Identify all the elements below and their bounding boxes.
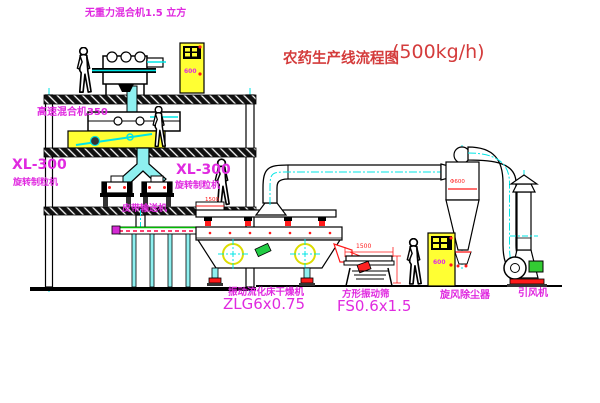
indicator-dot-icon [449,263,452,266]
slab-top [44,95,256,104]
indicator-dot-icon [198,45,201,48]
label-belt-conveyor: 皮带输送机 [122,205,167,214]
dim-dryer-feed: 1500 [205,198,219,204]
conveyor-drive [112,226,120,234]
worker-ground-floor [407,239,421,284]
dryer-supports [207,268,315,286]
column-left [46,95,53,287]
belt-conveyor [112,226,202,287]
indicator-dot-icon [198,72,201,75]
label-screen-model: FS0.6x1.5 [337,299,411,314]
diagram-title: 农药生产线流程图 [283,52,399,67]
label-granulator-name-right: 旋转制粒机 [175,182,220,191]
label-granulator-model-right: XL-300 [176,163,231,177]
label-high-speed-mixer: 高速混合机350 [37,108,108,118]
indicator-dot-icon [449,236,452,239]
slab-mid [44,148,256,157]
cabinet-mark-ground: 600 [433,260,446,266]
dim-cyclone-diameter: Φ600 [450,180,465,186]
granulator-right [140,176,174,207]
dim-screen-length: 1500 [356,244,371,250]
diagram-title-capacity: (500kg/h) [392,43,485,62]
ground-building [30,287,256,291]
worker-top-floor [77,47,91,92]
cabinet-mark-top: 600 [184,69,197,75]
exhaust-hood [256,203,286,215]
fluid-bed-dryer [196,202,360,286]
fan-motor [529,261,543,272]
label-gravity-mixer: 无重力混合机1.5 立方 [85,9,186,19]
label-cyclone: 旋风除尘器 [440,291,490,301]
process-flow-diagram: 无重力混合机1.5 立方 农药生产线流程图 (500kg/h) 高速混合机350… [0,0,600,403]
label-fan: 引风机 [518,289,548,299]
label-granulator-name-left: 旋转制粒机 [13,179,58,188]
label-dryer-model: ZLG6x0.75 [223,297,305,312]
label-granulator-model-left: XL-300 [12,158,67,172]
spring-mounts [204,217,326,226]
exhaust-duct [263,164,452,205]
